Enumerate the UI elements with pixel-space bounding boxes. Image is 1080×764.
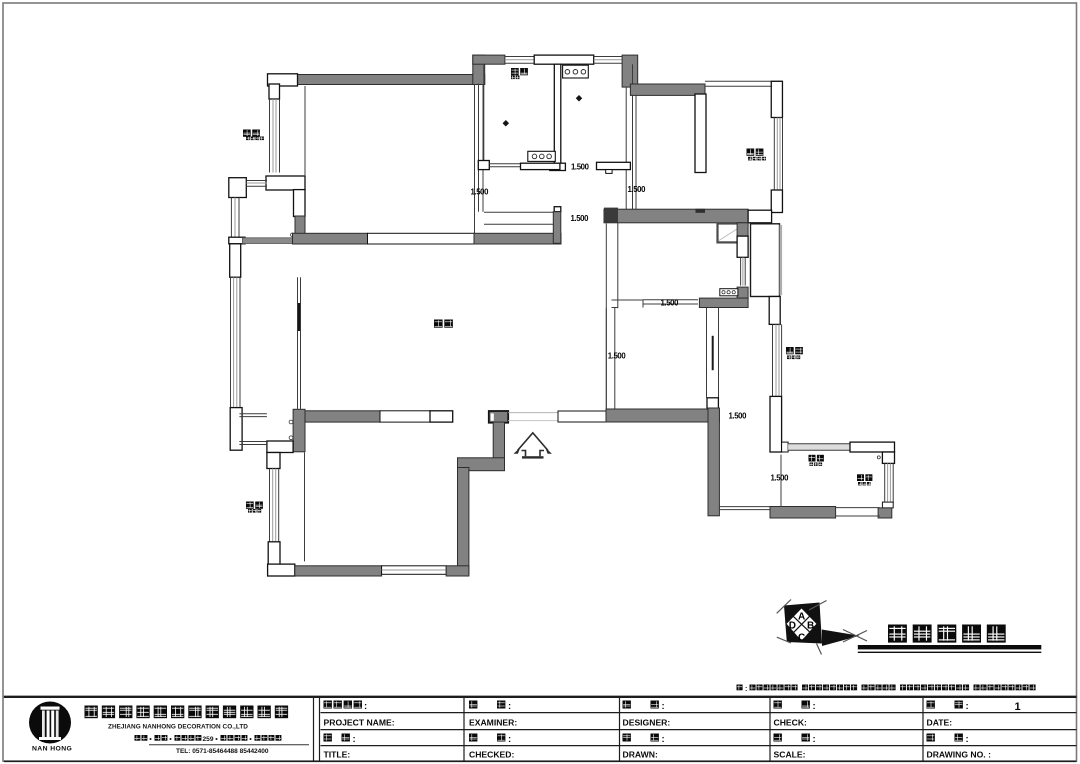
svg-text:DESIGNER:: DESIGNER:: [623, 718, 671, 728]
svg-text:NAN HONG: NAN HONG: [32, 746, 72, 753]
svg-text:1.500: 1.500: [571, 163, 590, 172]
svg-text:259: 259: [203, 736, 214, 743]
svg-text::: :: [966, 701, 969, 712]
svg-text:EXAMINER:: EXAMINER:: [469, 718, 517, 728]
svg-text:PROJECT NAME:: PROJECT NAME:: [324, 718, 395, 728]
svg-text:1.500: 1.500: [571, 214, 590, 223]
svg-text::: :: [353, 734, 356, 745]
svg-text:1: 1: [1015, 701, 1021, 713]
svg-text:B: B: [807, 620, 814, 631]
svg-text:DATE:: DATE:: [927, 718, 953, 728]
svg-text:1.500: 1.500: [661, 299, 680, 308]
svg-text:DRAWN:: DRAWN:: [623, 750, 658, 760]
svg-text:ZHEJIANG NANHONG DECORATION CO: ZHEJIANG NANHONG DECORATION CO.,LTD: [108, 724, 248, 731]
svg-text:TEL: 0571-85464488 85442400: TEL: 0571-85464488 85442400: [176, 748, 269, 755]
svg-text:1.500: 1.500: [771, 474, 790, 483]
svg-text:1.500: 1.500: [471, 188, 490, 197]
svg-text:1.500: 1.500: [729, 412, 748, 421]
svg-text:CHECK:: CHECK:: [774, 718, 808, 728]
svg-text:A: A: [798, 612, 805, 623]
svg-text:TITLE:: TITLE:: [324, 750, 351, 760]
svg-text::: :: [508, 734, 511, 745]
svg-text::: :: [662, 701, 665, 712]
svg-text::: :: [813, 734, 816, 745]
svg-text:D: D: [789, 620, 796, 631]
svg-text:1.500: 1.500: [608, 352, 627, 361]
svg-text::: :: [662, 734, 665, 745]
svg-text::: :: [813, 701, 816, 712]
svg-text:CHECKED:: CHECKED:: [469, 750, 514, 760]
svg-text::: :: [966, 734, 969, 745]
svg-text:SCALE:: SCALE:: [774, 750, 806, 760]
svg-text:1.500: 1.500: [628, 185, 647, 194]
svg-text:DRAWING NO. :: DRAWING NO. :: [927, 750, 992, 760]
svg-text::: :: [508, 701, 511, 712]
svg-text:C: C: [798, 633, 805, 644]
svg-text::: :: [745, 686, 747, 693]
svg-text::: :: [364, 701, 367, 712]
